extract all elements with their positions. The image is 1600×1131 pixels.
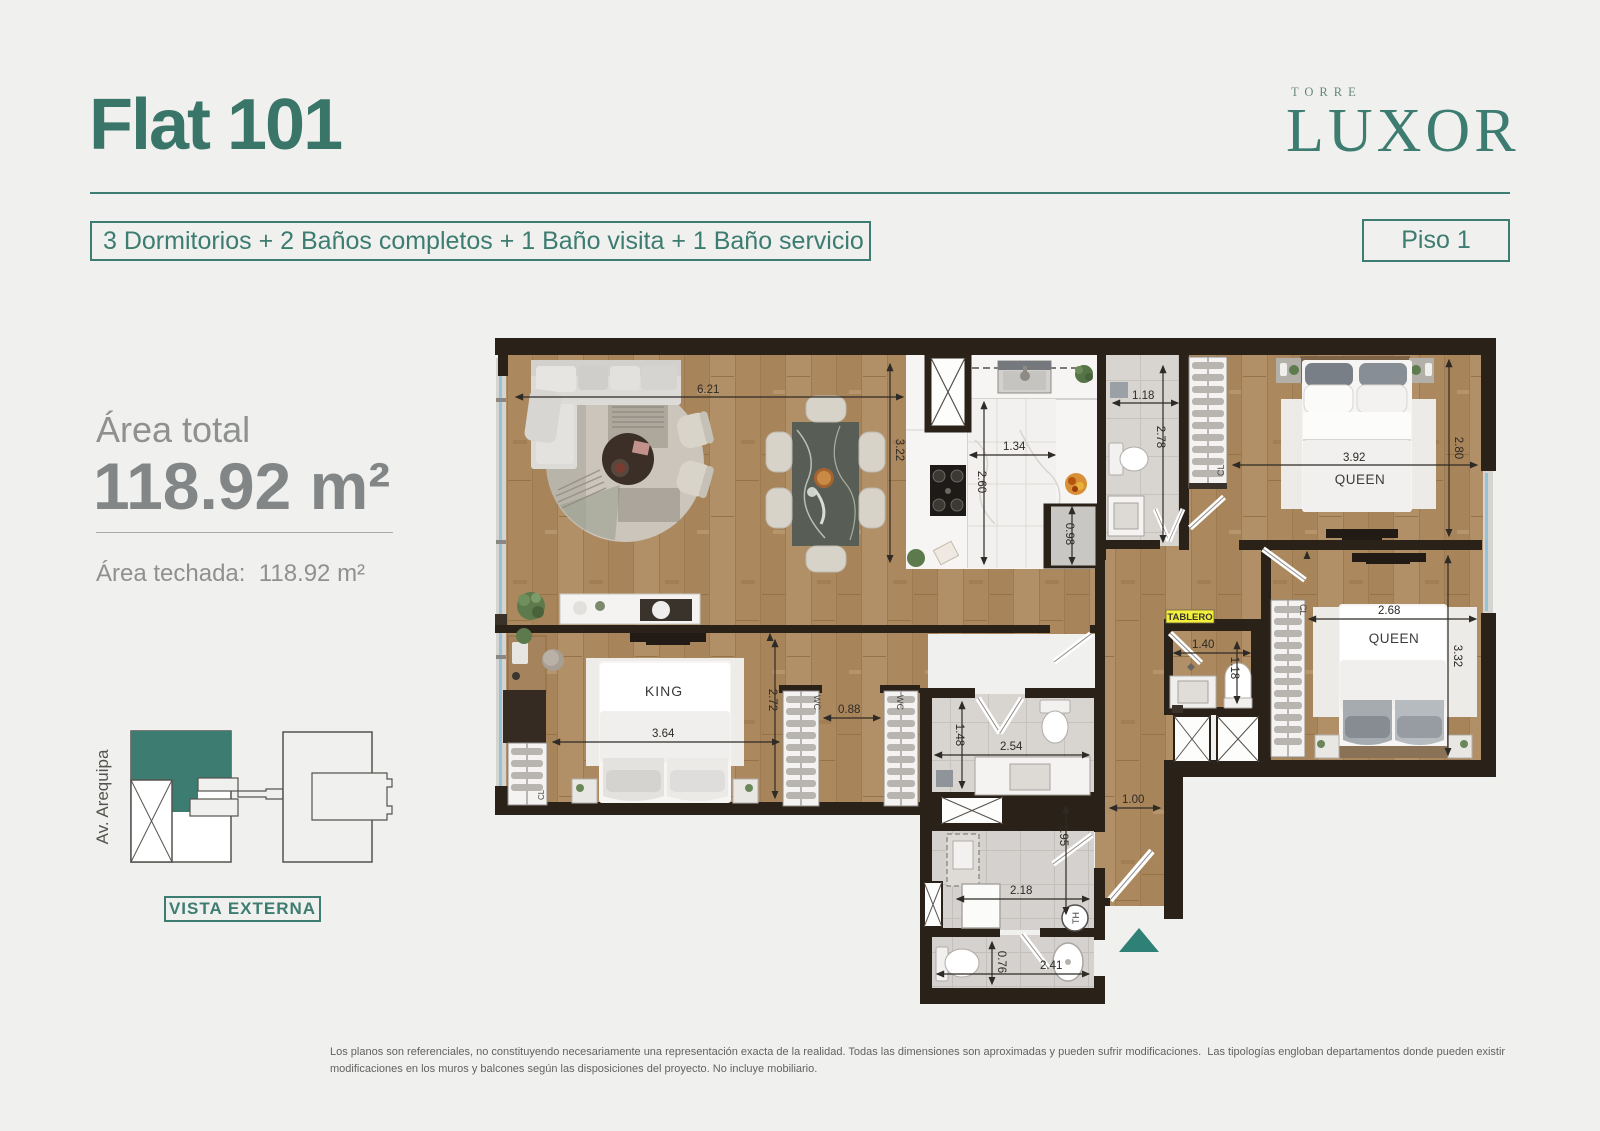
svg-text:CL: CL: [1298, 604, 1308, 616]
svg-text:2.18: 2.18: [1010, 885, 1032, 897]
svg-text:KING: KING: [645, 683, 683, 699]
svg-text:WC: WC: [895, 695, 905, 710]
svg-text:CL: CL: [537, 789, 546, 800]
svg-text:2.54: 2.54: [1000, 741, 1023, 753]
svg-text:CL: CL: [1216, 464, 1226, 476]
svg-text:TABLERO: TABLERO: [1167, 612, 1212, 623]
svg-text:2.60: 2.60: [975, 471, 987, 493]
svg-text:2.41: 2.41: [1040, 960, 1062, 972]
svg-text:1.48: 1.48: [953, 724, 965, 746]
svg-text:QUEEN: QUEEN: [1369, 631, 1420, 646]
svg-text:3.32: 3.32: [1451, 645, 1463, 667]
svg-text:QUEEN: QUEEN: [1335, 472, 1386, 487]
svg-text:1.34: 1.34: [1003, 441, 1026, 453]
svg-text:1.95: 1.95: [1057, 824, 1069, 846]
svg-text:3.22: 3.22: [893, 439, 905, 461]
svg-text:1.18: 1.18: [1132, 390, 1154, 402]
svg-text:1.18: 1.18: [1228, 657, 1240, 679]
svg-text:0.76: 0.76: [995, 951, 1007, 973]
svg-text:2.68: 2.68: [1378, 605, 1400, 617]
svg-text:Av. Arequipa: Av. Arequipa: [93, 749, 112, 844]
svg-text:0.88: 0.88: [838, 704, 860, 716]
svg-text:1.40: 1.40: [1192, 639, 1214, 651]
svg-text:WC: WC: [812, 695, 822, 710]
svg-text:1.00: 1.00: [1122, 794, 1144, 806]
svg-text:3.64: 3.64: [652, 728, 675, 740]
svg-text:2.72: 2.72: [766, 689, 778, 711]
svg-text:2.80: 2.80: [1452, 437, 1464, 459]
svg-text:3.92: 3.92: [1343, 452, 1365, 464]
svg-text:6.21: 6.21: [697, 384, 719, 396]
svg-text:2.78: 2.78: [1154, 426, 1166, 448]
svg-text:TH: TH: [1071, 912, 1081, 924]
svg-text:0.98: 0.98: [1063, 523, 1075, 545]
